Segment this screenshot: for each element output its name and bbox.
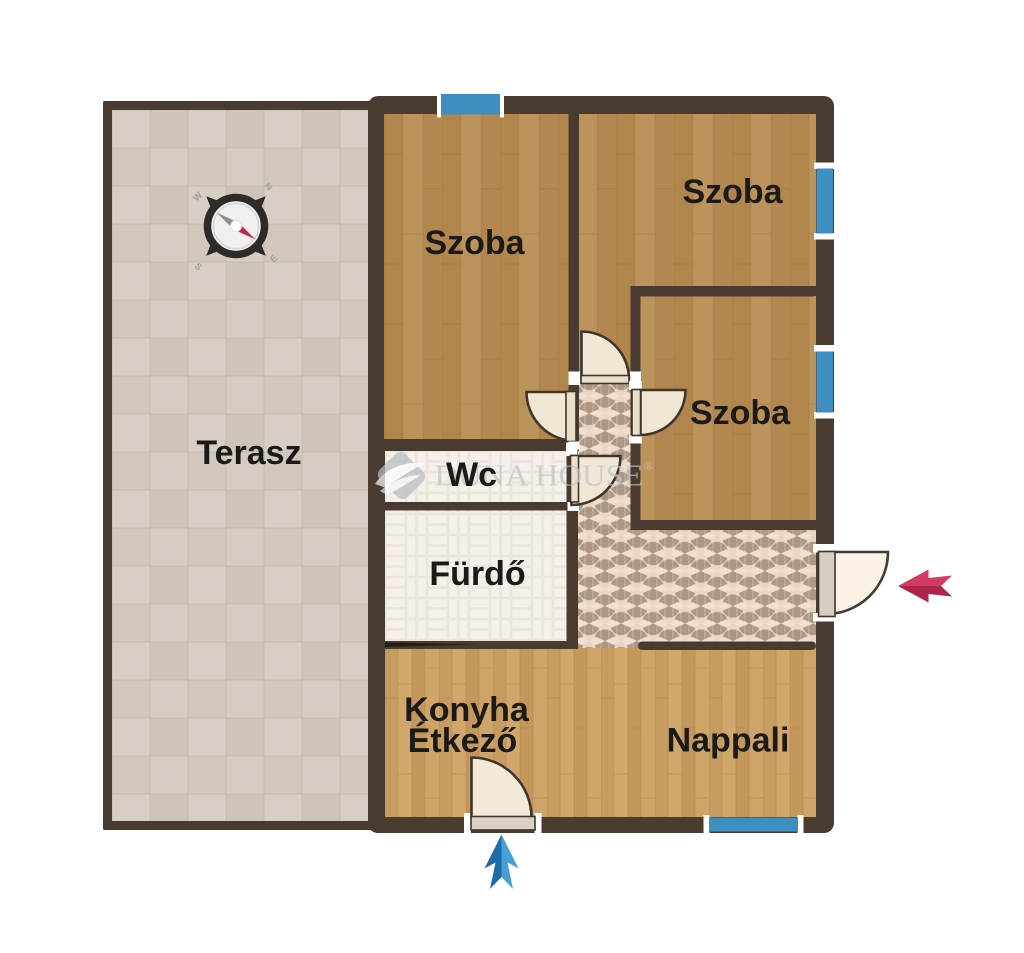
svg-text:Szoba: Szoba: [682, 173, 783, 211]
svg-text:®: ®: [644, 458, 654, 473]
svg-text:Fürdő: Fürdő: [429, 555, 525, 593]
svg-text:Étkező: Étkező: [408, 722, 518, 760]
svg-text:Nappali: Nappali: [667, 722, 790, 760]
svg-text:Szoba: Szoba: [690, 394, 791, 432]
svg-text:Szoba: Szoba: [424, 224, 525, 262]
svg-text:Wc: Wc: [446, 456, 497, 494]
svg-text:Terasz: Terasz: [196, 434, 301, 472]
